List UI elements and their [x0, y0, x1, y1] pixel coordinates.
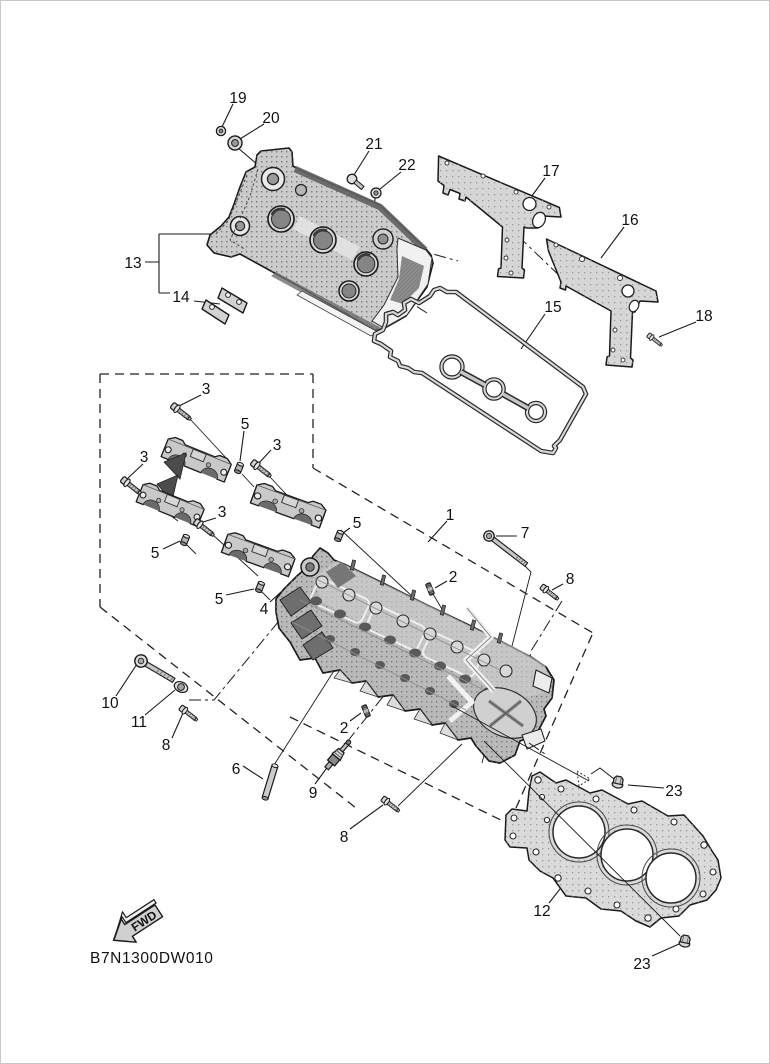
svg-text:20: 20 [262, 110, 280, 127]
svg-text:18: 18 [695, 308, 712, 325]
svg-text:8: 8 [566, 571, 575, 588]
svg-text:21: 21 [365, 136, 382, 153]
svg-text:23: 23 [665, 783, 682, 800]
svg-text:8: 8 [162, 737, 171, 754]
svg-text:15: 15 [544, 299, 561, 316]
svg-text:6: 6 [232, 761, 241, 778]
svg-text:B7N1300DW010: B7N1300DW010 [90, 950, 214, 967]
svg-text:2: 2 [449, 569, 458, 586]
svg-text:17: 17 [542, 163, 559, 180]
svg-text:5: 5 [215, 591, 224, 608]
svg-text:14: 14 [172, 289, 190, 306]
svg-text:9: 9 [309, 785, 318, 802]
svg-text:3: 3 [202, 381, 211, 398]
svg-text:23: 23 [633, 956, 650, 973]
svg-text:2: 2 [340, 720, 349, 737]
svg-text:7: 7 [521, 525, 530, 542]
svg-text:1: 1 [446, 507, 455, 524]
svg-text:16: 16 [621, 212, 638, 229]
svg-text:22: 22 [398, 157, 415, 174]
svg-text:13: 13 [124, 255, 141, 272]
svg-text:19: 19 [229, 90, 246, 107]
svg-text:5: 5 [151, 545, 160, 562]
svg-text:5: 5 [241, 416, 250, 433]
svg-text:12: 12 [533, 903, 550, 920]
svg-text:4: 4 [260, 601, 269, 618]
svg-text:3: 3 [140, 449, 149, 466]
svg-text:8: 8 [340, 829, 349, 846]
svg-text:3: 3 [218, 504, 227, 521]
svg-text:3: 3 [273, 437, 282, 454]
svg-text:11: 11 [131, 714, 147, 731]
svg-text:10: 10 [101, 695, 119, 712]
svg-text:5: 5 [353, 515, 362, 532]
